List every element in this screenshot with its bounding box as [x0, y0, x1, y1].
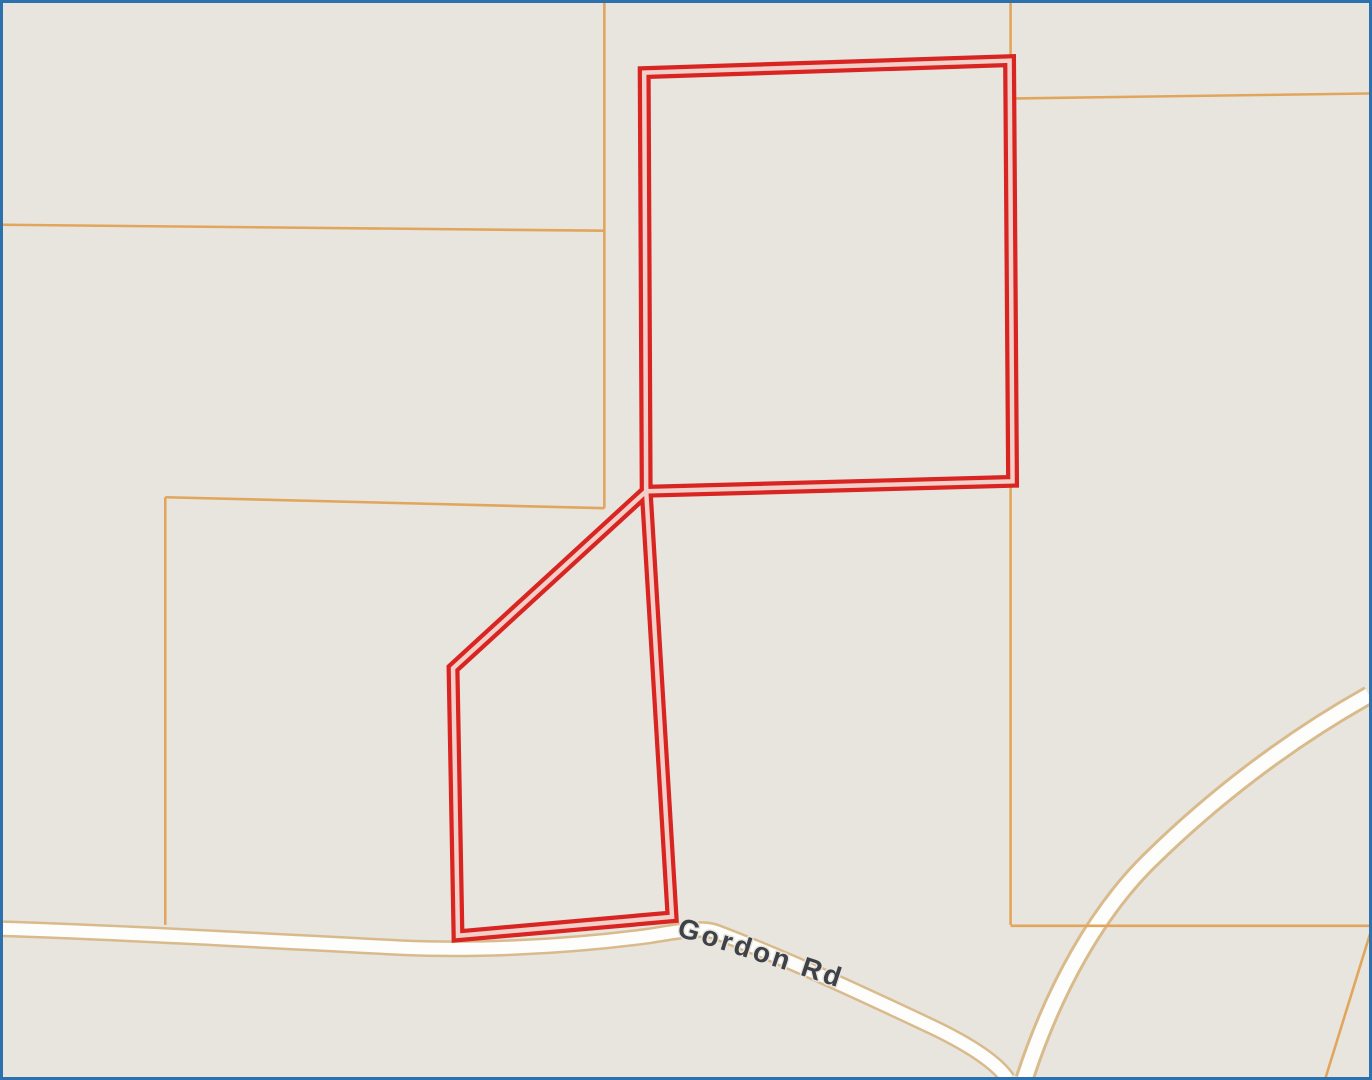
- map-frame: Gordon Rd: [0, 0, 1372, 1080]
- parcel-map-canvas[interactable]: Gordon Rd: [3, 3, 1369, 1077]
